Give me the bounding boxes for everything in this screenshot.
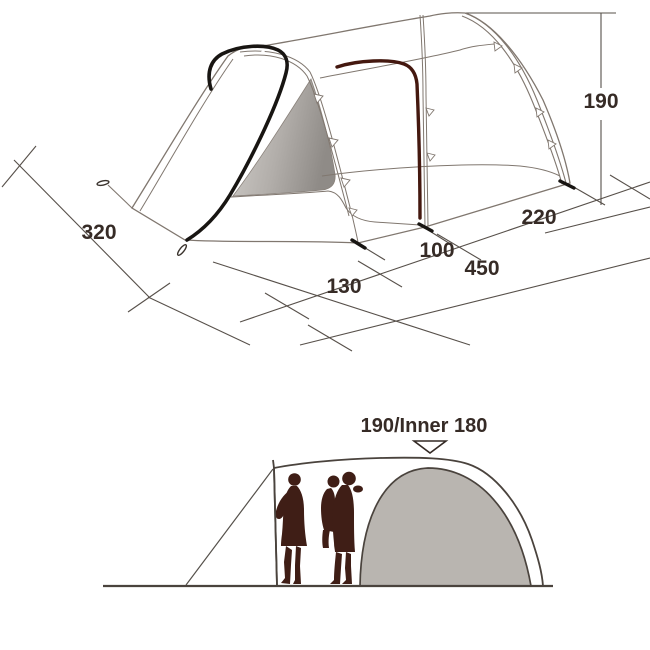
zipper-eyelet-icon [261,50,265,54]
dim-label-190: 190 [583,90,618,113]
dim-label-130: 130 [326,275,361,298]
guy-peg-icon [97,180,110,187]
dim-label-100: 100 [419,239,454,262]
dim-tick [308,325,352,351]
tent-isometric-view: 320 130 100 450 220 190 [2,13,650,351]
dim-tick [2,146,36,187]
dim-label-450: 450 [464,257,499,280]
dim-tick [358,261,402,287]
diagram-canvas: 320 130 100 450 220 190 190/Inner 180 [0,0,650,650]
profile-guy-line [186,469,273,585]
down-arrow-icon [414,441,446,453]
profile-height-label: 190/Inner 180 [361,415,488,437]
dim-label-320: 320 [81,221,116,244]
dim-extension [148,297,250,345]
dim-tick [610,175,650,199]
tent-dimension-figure: 320 130 100 450 220 190 190/Inner 180 [0,0,650,650]
dim-label-220: 220 [521,206,556,229]
dim-extension [545,207,650,233]
tent-side-profile-view: 190/Inner 180 [103,415,553,586]
tent-body [97,13,574,257]
door-peg-icon [176,244,187,257]
guy-line [108,185,132,208]
dim-extension [572,186,605,205]
dim-tick [265,293,309,319]
